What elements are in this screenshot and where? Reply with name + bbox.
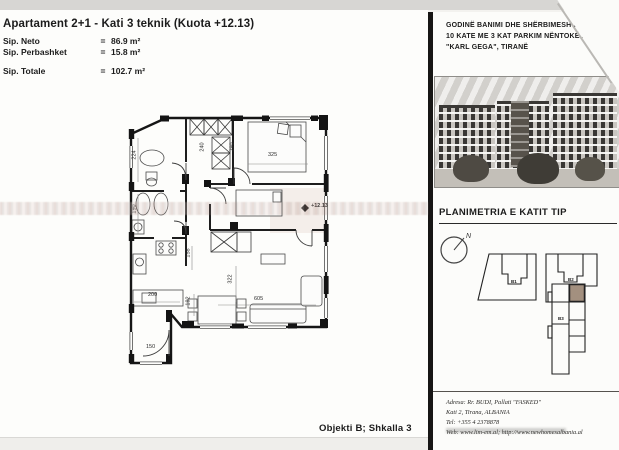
title-block: Apartament 2+1 - Kati 3 teknik (Kuota +1… xyxy=(3,18,323,77)
dimension-label: 158 xyxy=(186,248,192,257)
highlighted-unit xyxy=(570,285,584,301)
render-tree xyxy=(453,155,489,182)
tb-eq: = xyxy=(95,36,111,47)
scan-bottom-edge xyxy=(0,438,428,450)
svg-text:B3: B3 xyxy=(558,316,564,321)
panel-divider-bar xyxy=(428,12,433,450)
tb-label: Sip. Perbashket xyxy=(3,47,95,58)
area-row: Sip. Perbashket=15.8 m² xyxy=(3,47,323,58)
tb-label: Sip. Totale xyxy=(3,66,95,77)
dimension-label: 290 xyxy=(230,142,236,151)
address-divider xyxy=(433,391,619,392)
closets xyxy=(190,119,251,252)
building-render-photo xyxy=(434,76,619,188)
dimension-label: 605 xyxy=(254,296,263,302)
cut-off-text-smudge xyxy=(446,428,566,433)
tb-val: 86.9 m² xyxy=(111,36,140,47)
scan-noise-band xyxy=(0,202,428,215)
dimension-label: 192 xyxy=(186,296,192,305)
tb-val: 15.8 m² xyxy=(111,47,140,58)
scanned-floorplan-sheet: Apartament 2+1 - Kati 3 teknik (Kuota +1… xyxy=(0,0,619,450)
tb-eq: = xyxy=(95,66,111,77)
svg-text:B2: B2 xyxy=(568,277,574,282)
tb-label: Sip. Neto xyxy=(3,36,95,47)
site-plan-drawing: N B1 B2 B3 xyxy=(434,228,618,390)
dimension-label: 325 xyxy=(268,152,277,158)
address-line: Kati 2, Tirana, ALBANIA xyxy=(446,408,616,418)
svg-text:N: N xyxy=(466,233,472,240)
dimension-label: 322 xyxy=(228,274,234,283)
dimension-label: 200 xyxy=(148,292,157,298)
tb-eq: = xyxy=(95,47,111,58)
site-plan: N B1 B2 B3 xyxy=(434,228,618,390)
north-compass-icon: N xyxy=(441,233,472,263)
area-row: Sip. Totale=102.7 m² xyxy=(3,66,323,77)
dimension-label: 240 xyxy=(200,142,206,151)
render-tree xyxy=(575,157,605,181)
dimension-label: 150 xyxy=(146,344,155,350)
siteplan-heading: PLANIMETRIA E KATIT TIP xyxy=(439,207,617,224)
tb-val: 102.7 m² xyxy=(111,66,145,77)
sheet-caption: Objekti B; Shkalla 3 xyxy=(319,423,412,434)
dimension-label: 224 xyxy=(132,150,138,159)
site-building-b3: B3 xyxy=(548,284,585,374)
scan-top-edge xyxy=(0,0,619,10)
svg-text:B1: B1 xyxy=(511,279,517,284)
area-table: Sip. Neto=86.9 m²Sip. Perbashket=15.8 m²… xyxy=(3,36,323,77)
address-line: Tel: +355 4 2378878 xyxy=(446,418,616,428)
floor-plan: 224190240290325158322192200605150 +12.13 xyxy=(118,104,340,396)
apartment-title: Apartament 2+1 - Kati 3 teknik (Kuota +1… xyxy=(3,18,323,30)
site-building-b1: B1 xyxy=(478,254,536,300)
render-tree xyxy=(517,153,559,184)
area-row: Sip. Neto=86.9 m² xyxy=(3,36,323,47)
address-line: Adresa: Rr. BUDI, Pallati "FASKED" xyxy=(446,398,616,408)
